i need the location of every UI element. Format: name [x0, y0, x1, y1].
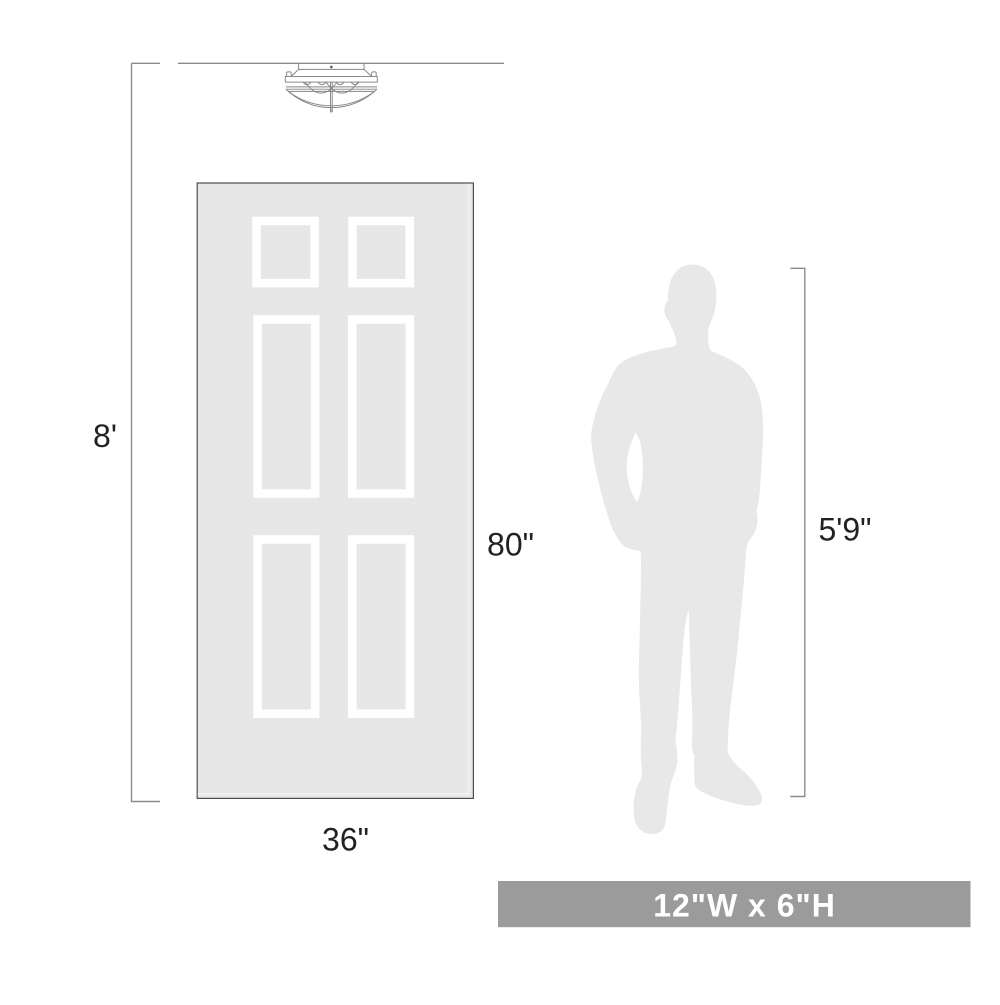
svg-text:36": 36"	[322, 822, 369, 858]
svg-text:12"W x 6"H: 12"W x 6"H	[653, 887, 836, 923]
svg-text:5'9": 5'9"	[818, 512, 871, 548]
svg-text:8': 8'	[93, 418, 117, 454]
svg-text:80": 80"	[487, 527, 534, 563]
